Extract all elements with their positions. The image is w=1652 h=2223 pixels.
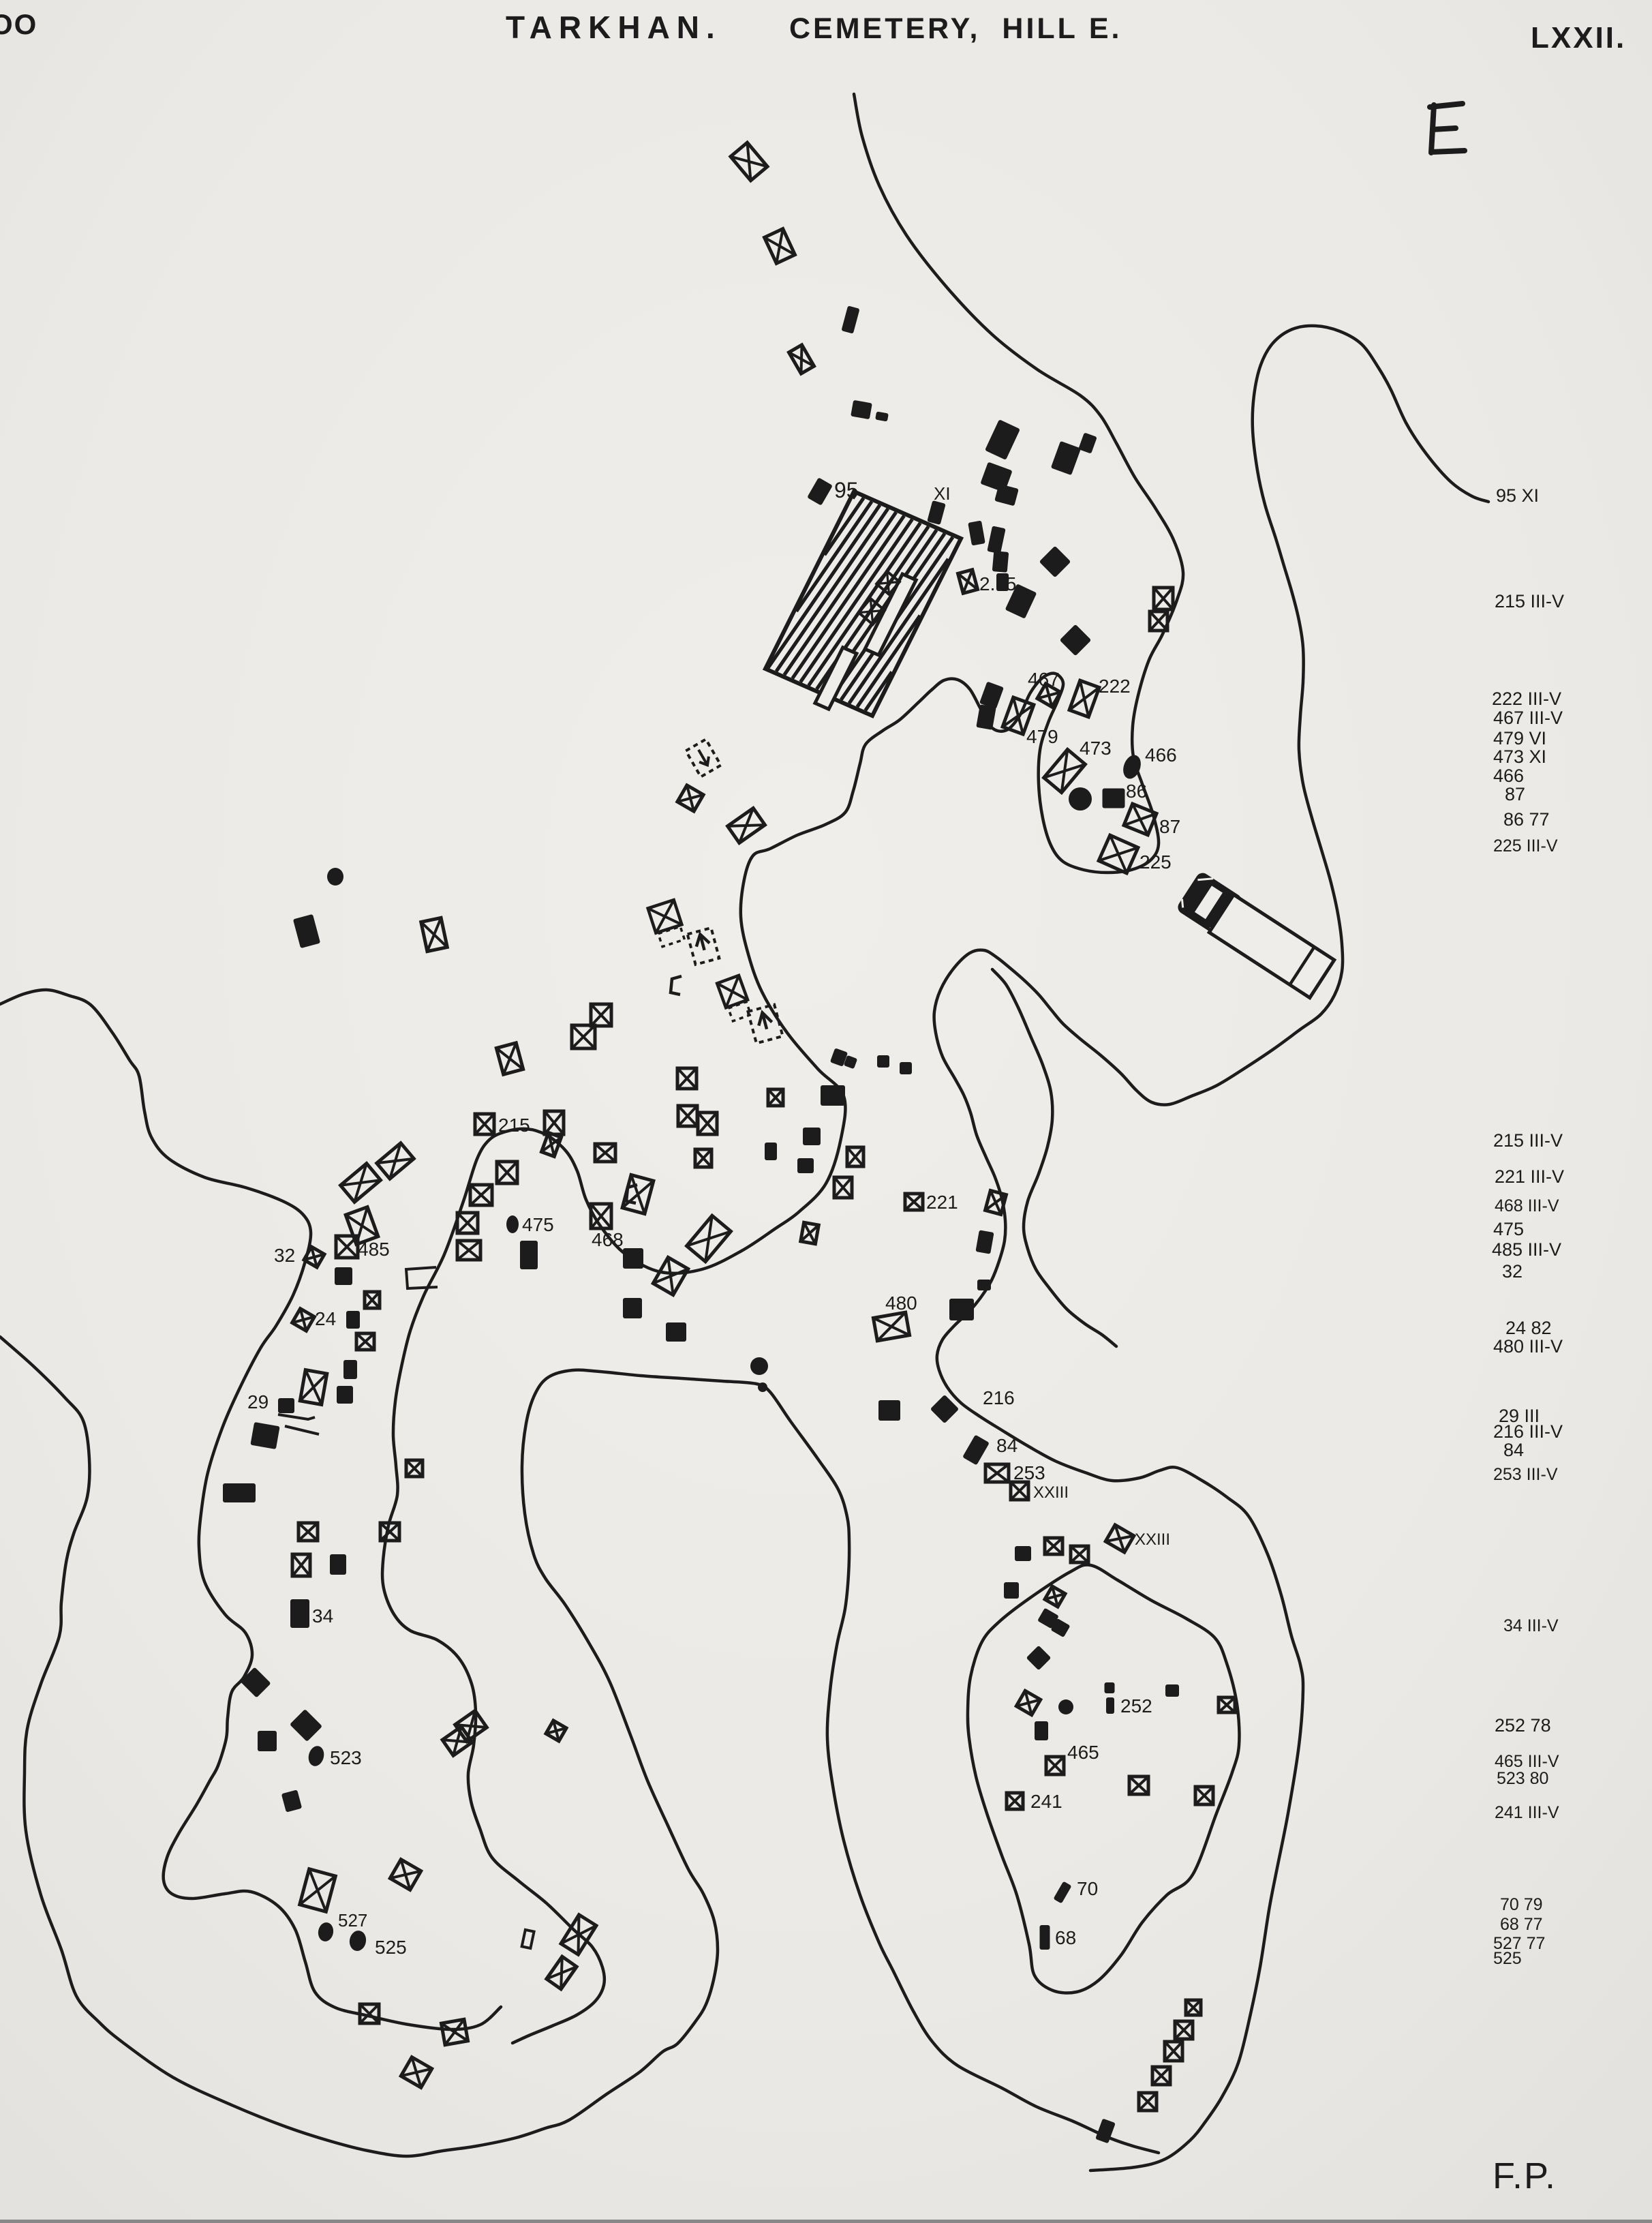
svg-text:222: 222 bbox=[1099, 676, 1131, 697]
svg-text:485: 485 bbox=[358, 1239, 390, 1260]
svg-text:95 XI: 95 XI bbox=[1496, 485, 1539, 506]
svg-text:XI: XI bbox=[934, 483, 951, 504]
svg-text:2.15: 2.15 bbox=[979, 573, 1017, 594]
svg-text:253 III-V: 253 III-V bbox=[1493, 1465, 1558, 1484]
svg-text:70 79: 70 79 bbox=[1500, 1895, 1543, 1914]
svg-text:87: 87 bbox=[1159, 816, 1180, 837]
svg-text:LXXII.: LXXII. bbox=[1531, 21, 1626, 55]
svg-text:475: 475 bbox=[1493, 1219, 1524, 1239]
svg-text:465: 465 bbox=[1067, 1742, 1099, 1763]
svg-text:TARKHAN.: TARKHAN. bbox=[506, 10, 722, 45]
svg-text:84: 84 bbox=[996, 1435, 1018, 1456]
svg-text:466: 466 bbox=[1145, 744, 1177, 766]
svg-text:OO: OO bbox=[0, 8, 37, 40]
svg-text:467: 467 bbox=[1028, 669, 1060, 690]
svg-text:479 VI: 479 VI bbox=[1493, 728, 1546, 748]
svg-text:523 80: 523 80 bbox=[1497, 1769, 1548, 1788]
svg-text:221 III-V: 221 III-V bbox=[1495, 1166, 1564, 1187]
svg-text:225: 225 bbox=[1139, 851, 1172, 873]
svg-text:485 III-V: 485 III-V bbox=[1492, 1239, 1561, 1260]
svg-text:CEMETERY, HILL E.: CEMETERY, HILL E. bbox=[789, 12, 1122, 45]
svg-text:525: 525 bbox=[1493, 1949, 1522, 1968]
svg-text:480 III-V: 480 III-V bbox=[1493, 1336, 1563, 1357]
svg-text:466: 466 bbox=[1493, 766, 1524, 786]
svg-text:253: 253 bbox=[1013, 1462, 1045, 1483]
svg-text:29: 29 bbox=[247, 1391, 269, 1412]
svg-text:215: 215 bbox=[498, 1115, 530, 1136]
svg-text:86: 86 bbox=[1126, 781, 1147, 802]
svg-text:241 III-V: 241 III-V bbox=[1495, 1803, 1559, 1822]
svg-text:95: 95 bbox=[834, 478, 859, 502]
svg-text:XXIII: XXIII bbox=[1135, 1530, 1170, 1549]
svg-text:479: 479 bbox=[1026, 726, 1058, 747]
svg-text:215 III-V: 215 III-V bbox=[1495, 591, 1564, 611]
svg-text:475: 475 bbox=[522, 1214, 554, 1235]
svg-text:84: 84 bbox=[1503, 1440, 1524, 1460]
svg-text:216 III-V: 216 III-V bbox=[1493, 1421, 1563, 1442]
svg-text:87: 87 bbox=[1505, 784, 1525, 804]
svg-text:525: 525 bbox=[375, 1937, 407, 1958]
svg-text:24 82: 24 82 bbox=[1505, 1318, 1552, 1338]
svg-text:221: 221 bbox=[926, 1192, 958, 1213]
svg-text:215 III-V: 215 III-V bbox=[1493, 1130, 1563, 1151]
svg-text:24: 24 bbox=[315, 1308, 336, 1329]
svg-text:216: 216 bbox=[983, 1387, 1015, 1408]
svg-text:467 III-V: 467 III-V bbox=[1493, 708, 1563, 728]
svg-text:32: 32 bbox=[274, 1245, 295, 1266]
svg-text:523: 523 bbox=[330, 1747, 362, 1768]
svg-text:70: 70 bbox=[1077, 1878, 1098, 1899]
svg-text:252: 252 bbox=[1120, 1695, 1152, 1717]
svg-text:XXIII: XXIII bbox=[1033, 1483, 1069, 1502]
svg-text:225 III-V: 225 III-V bbox=[1493, 836, 1558, 856]
svg-text:480: 480 bbox=[885, 1292, 917, 1314]
svg-text:86 77: 86 77 bbox=[1503, 809, 1550, 830]
svg-text:465 III-V: 465 III-V bbox=[1495, 1752, 1559, 1771]
svg-text:468 III-V: 468 III-V bbox=[1495, 1196, 1559, 1215]
svg-text:32: 32 bbox=[1502, 1261, 1523, 1282]
svg-text:34 III-V: 34 III-V bbox=[1503, 1616, 1559, 1635]
svg-text:68: 68 bbox=[1055, 1927, 1076, 1948]
svg-text:252 78: 252 78 bbox=[1495, 1715, 1551, 1736]
svg-text:F.P.: F.P. bbox=[1493, 2156, 1557, 2196]
svg-text:222 III-V: 222 III-V bbox=[1492, 689, 1561, 709]
svg-text:473 XI: 473 XI bbox=[1493, 746, 1546, 767]
svg-text:241: 241 bbox=[1030, 1791, 1062, 1812]
svg-text:473: 473 bbox=[1080, 738, 1112, 759]
svg-text:527: 527 bbox=[338, 1910, 367, 1931]
svg-text:68 77: 68 77 bbox=[1500, 1915, 1543, 1934]
svg-text:34: 34 bbox=[312, 1605, 333, 1627]
svg-text:468: 468 bbox=[592, 1229, 624, 1250]
